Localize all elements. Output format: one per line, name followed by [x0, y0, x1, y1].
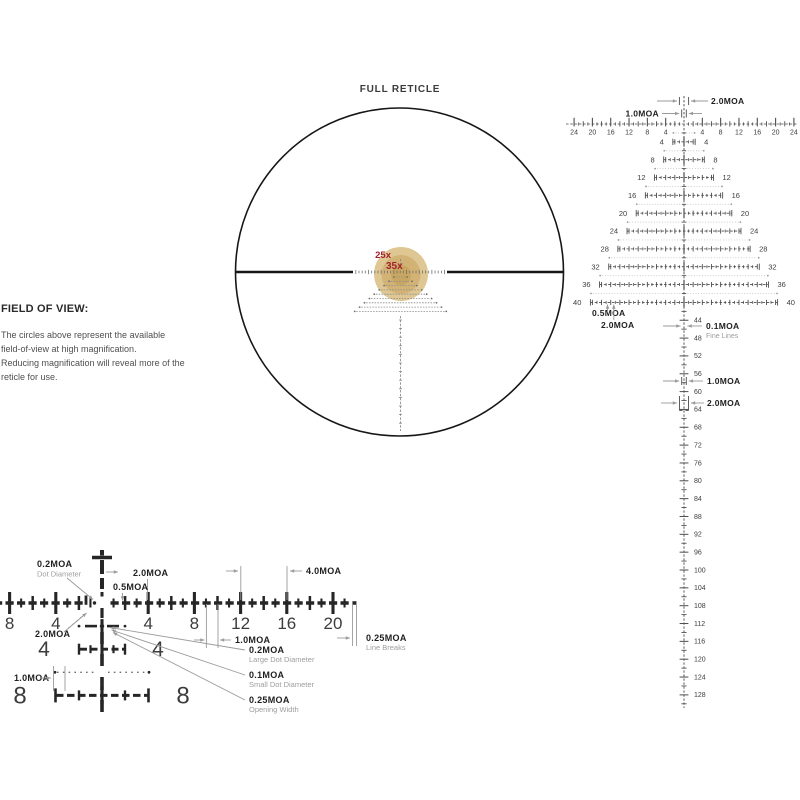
right-vscale-number: 92: [694, 532, 702, 539]
right-ann-2moa: 2.0MOA: [601, 320, 634, 330]
right-ann-fine-lines-sub: Fine Lines: [706, 333, 739, 340]
ann-mid-1moa: 1.0MOA: [235, 635, 271, 645]
right-horizontal-scale: 24201612844812162024: [566, 118, 798, 137]
right-ann-v-1moa: 1.0MOA: [707, 376, 740, 386]
right-vscale-number: 60: [694, 389, 702, 396]
right-tree-number: 16: [628, 191, 636, 200]
right-tree-number: 24: [750, 227, 758, 236]
ann-small-dot-sub: Small Dot Diameter: [249, 680, 315, 689]
right-vscale-number: 84: [694, 496, 702, 503]
right-vscale-number: 64: [694, 407, 702, 414]
right-tree-number: 4: [660, 137, 664, 146]
right-tree: 448812121616202024242828323236364040: [573, 124, 795, 307]
right-vscale-number: 80: [694, 478, 702, 485]
right-tree-number: 28: [601, 244, 609, 253]
full-reticle-title: FULL RETICLE: [0, 84, 800, 95]
right-ann-05moa: 0.5MOA: [592, 308, 625, 318]
mag-label-25x: 25x: [352, 250, 391, 261]
ann-large-dot-sub: Large Dot Diameter: [249, 655, 315, 664]
right-tree-number: 40: [573, 298, 581, 307]
right-tree-number: 32: [591, 262, 599, 271]
right-vscale-number: 112: [694, 621, 705, 628]
right-hscale-number: 16: [607, 130, 615, 137]
ann-4moa: 4.0MOA: [306, 566, 342, 576]
right-vscale-number: 128: [694, 692, 706, 699]
ann-dot-diameter-sub: Dot Diameter: [37, 570, 82, 579]
full-reticle-figure: [236, 108, 564, 436]
right-tree-number: 12: [637, 173, 645, 182]
right-hscale-number: 20: [589, 130, 597, 137]
right-vscale-number: 120: [694, 657, 706, 664]
right-hscale-number: 8: [645, 130, 649, 137]
right-vscale-number: 104: [694, 585, 706, 592]
field-of-view-line: reticle for use.: [1, 370, 231, 384]
right-vscale-number: 108: [694, 603, 706, 610]
right-hscale-number: 4: [664, 130, 668, 137]
right-tree-number: 20: [741, 209, 749, 218]
right-tree-number: 16: [732, 191, 740, 200]
detail-hscale-number: 8: [5, 614, 14, 633]
right-vscale-number: 96: [694, 549, 702, 556]
right-tree-number: 8: [713, 155, 717, 164]
field-of-view-heading: FIELD OF VIEW:: [1, 303, 231, 315]
right-vscale-number: 116: [694, 639, 705, 646]
detail-row8-number: 8: [176, 682, 189, 709]
detail-row4-number: 4: [38, 638, 50, 661]
right-ann-top-2moa: 2.0MOA: [711, 96, 744, 106]
right-hscale-number: 24: [570, 130, 578, 137]
right-ann-top-1moa: 1.0MOA: [626, 109, 659, 119]
right-vscale-number: 52: [694, 353, 702, 360]
right-vscale-number: 88: [694, 514, 702, 521]
field-of-view-body: The circles above represent the availabl…: [1, 328, 231, 384]
right-vertical-scale: 4448525660646872768084889296100104108112…: [680, 302, 706, 708]
right-vscale-number: 100: [694, 567, 706, 574]
right-vscale-number: 76: [694, 460, 702, 467]
ann-opening: 0.25MOA: [249, 695, 290, 705]
detail-hscale-number: 20: [324, 614, 343, 633]
right-hscale-number: 12: [735, 130, 743, 137]
detail-hscale-number: 12: [231, 614, 250, 633]
right-tree-number: 32: [768, 262, 776, 271]
right-tree-number: 36: [777, 280, 785, 289]
mag-label-35x: 35x: [386, 261, 416, 272]
right-vscale-number: 56: [694, 371, 702, 378]
right-tree-number: 24: [610, 227, 618, 236]
right-vscale-number: 72: [694, 442, 702, 449]
ann-large-dot: 0.2MOA: [249, 645, 285, 655]
right-hscale-number: 20: [772, 130, 780, 137]
right-tree-number: 36: [582, 280, 590, 289]
detail-row8-number: 8: [13, 682, 26, 709]
field-of-view-line: field-of-view at high magnification.: [1, 342, 231, 356]
ann-opening-sub: Opening Width: [249, 705, 299, 714]
right-hscale-number: 16: [753, 130, 761, 137]
ann-dot-diameter: 0.2MOA: [37, 559, 73, 569]
field-of-view-line: Reducing magnification will reveal more …: [1, 356, 231, 370]
right-top-annotations: 2.0MOA1.0MOA: [626, 96, 745, 119]
right-hscale-number: 4: [700, 130, 704, 137]
right-tree-number: 12: [722, 173, 730, 182]
right-hscale-number: 24: [790, 130, 798, 137]
right-vscale-number: 124: [694, 674, 706, 681]
right-ann-v-2moa: 2.0MOA: [707, 398, 740, 408]
right-vscale-number: 68: [694, 425, 702, 432]
ann-small-dot: 0.1MOA: [249, 670, 285, 680]
right-tree-number: 40: [787, 298, 795, 307]
right-vscale-number: 44: [694, 318, 702, 325]
reticle-spec-sheet: FULL RETICLE 25x 35x FIELD OF VIEW: The …: [0, 0, 800, 800]
ann-05moa: 0.5MOA: [113, 582, 149, 592]
ann-line-breaks: 0.25MOA: [366, 633, 407, 643]
detail-hscale-number: 8: [190, 614, 199, 633]
right-vscale-number: 48: [694, 335, 702, 342]
detail-hscale-number: 4: [143, 614, 152, 633]
right-hscale-number: 12: [625, 130, 633, 137]
detail-annotations: 0.2MOADot Diameter2.0MOA0.5MOA4.0MOA2.0M…: [14, 559, 407, 714]
right-tree-number: 4: [704, 137, 708, 146]
ann-line-breaks-sub: Line Breaks: [366, 643, 406, 652]
detail-hscale-number: 16: [277, 614, 296, 633]
right-ann-fine-lines: 0.1MOA: [706, 321, 739, 331]
reticle-diagrams: 242016128448121620242.0MOA1.0MOA44881212…: [0, 0, 800, 800]
right-tree-number: 8: [651, 155, 655, 164]
field-of-view-line: The circles above represent the availabl…: [1, 328, 231, 342]
right-tree-number: 20: [619, 209, 627, 218]
right-bottom-annotations: 0.5MOA2.0MOA: [592, 305, 634, 331]
field-of-view-note: FIELD OF VIEW: The circles above represe…: [1, 303, 231, 384]
right-tree-number: 28: [759, 244, 767, 253]
ann-top-2moa: 2.0MOA: [133, 568, 169, 578]
right-hscale-number: 8: [719, 130, 723, 137]
